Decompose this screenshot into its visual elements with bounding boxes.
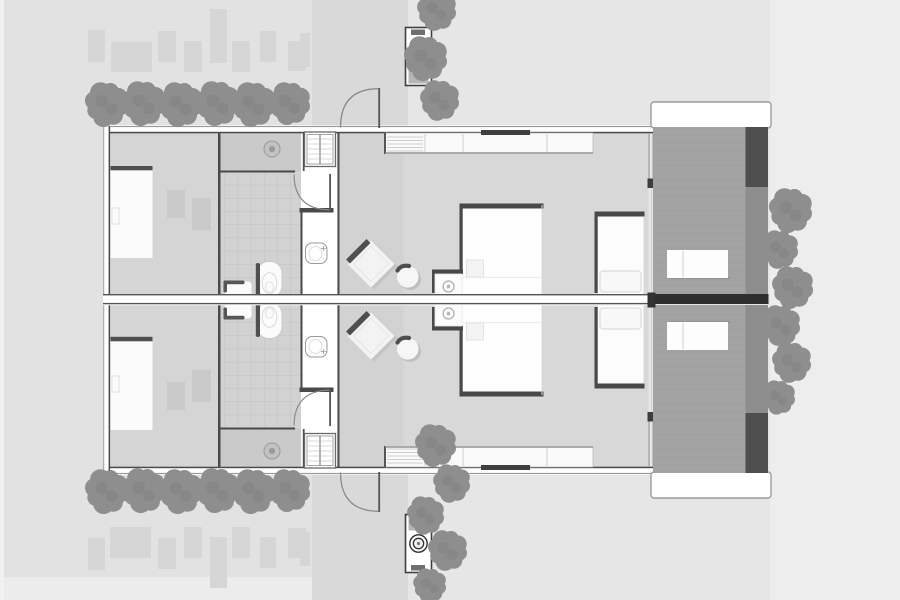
- paver-stone: [300, 532, 310, 566]
- paver-stone: [184, 41, 202, 72]
- paver-stone: [260, 537, 276, 568]
- paver-stone: [158, 31, 176, 62]
- paver-stone: [110, 527, 151, 558]
- floor-plan-canvas: [0, 0, 900, 600]
- background-edge-strip: [0, 0, 4, 600]
- left-room-bed-headboard: [111, 337, 153, 341]
- paver-stone: [210, 537, 227, 588]
- axis-wall-junction: [648, 293, 656, 308]
- left-room-bed-headboard: [111, 166, 153, 170]
- paver-stone: [232, 41, 250, 72]
- paver-stone: [111, 42, 152, 72]
- paver-stone: [158, 538, 176, 569]
- paver-stone: [210, 9, 227, 63]
- paver-stone: [88, 538, 105, 570]
- floor-plan-drawing: [0, 0, 900, 600]
- paver-stone: [88, 30, 105, 62]
- paver-stone: [300, 33, 310, 67]
- deck-party-wall: [656, 294, 769, 304]
- paver-stone: [260, 31, 276, 62]
- paver-stone: [184, 527, 202, 558]
- paver-stone: [232, 527, 250, 558]
- background-bottom-strip: [0, 577, 312, 600]
